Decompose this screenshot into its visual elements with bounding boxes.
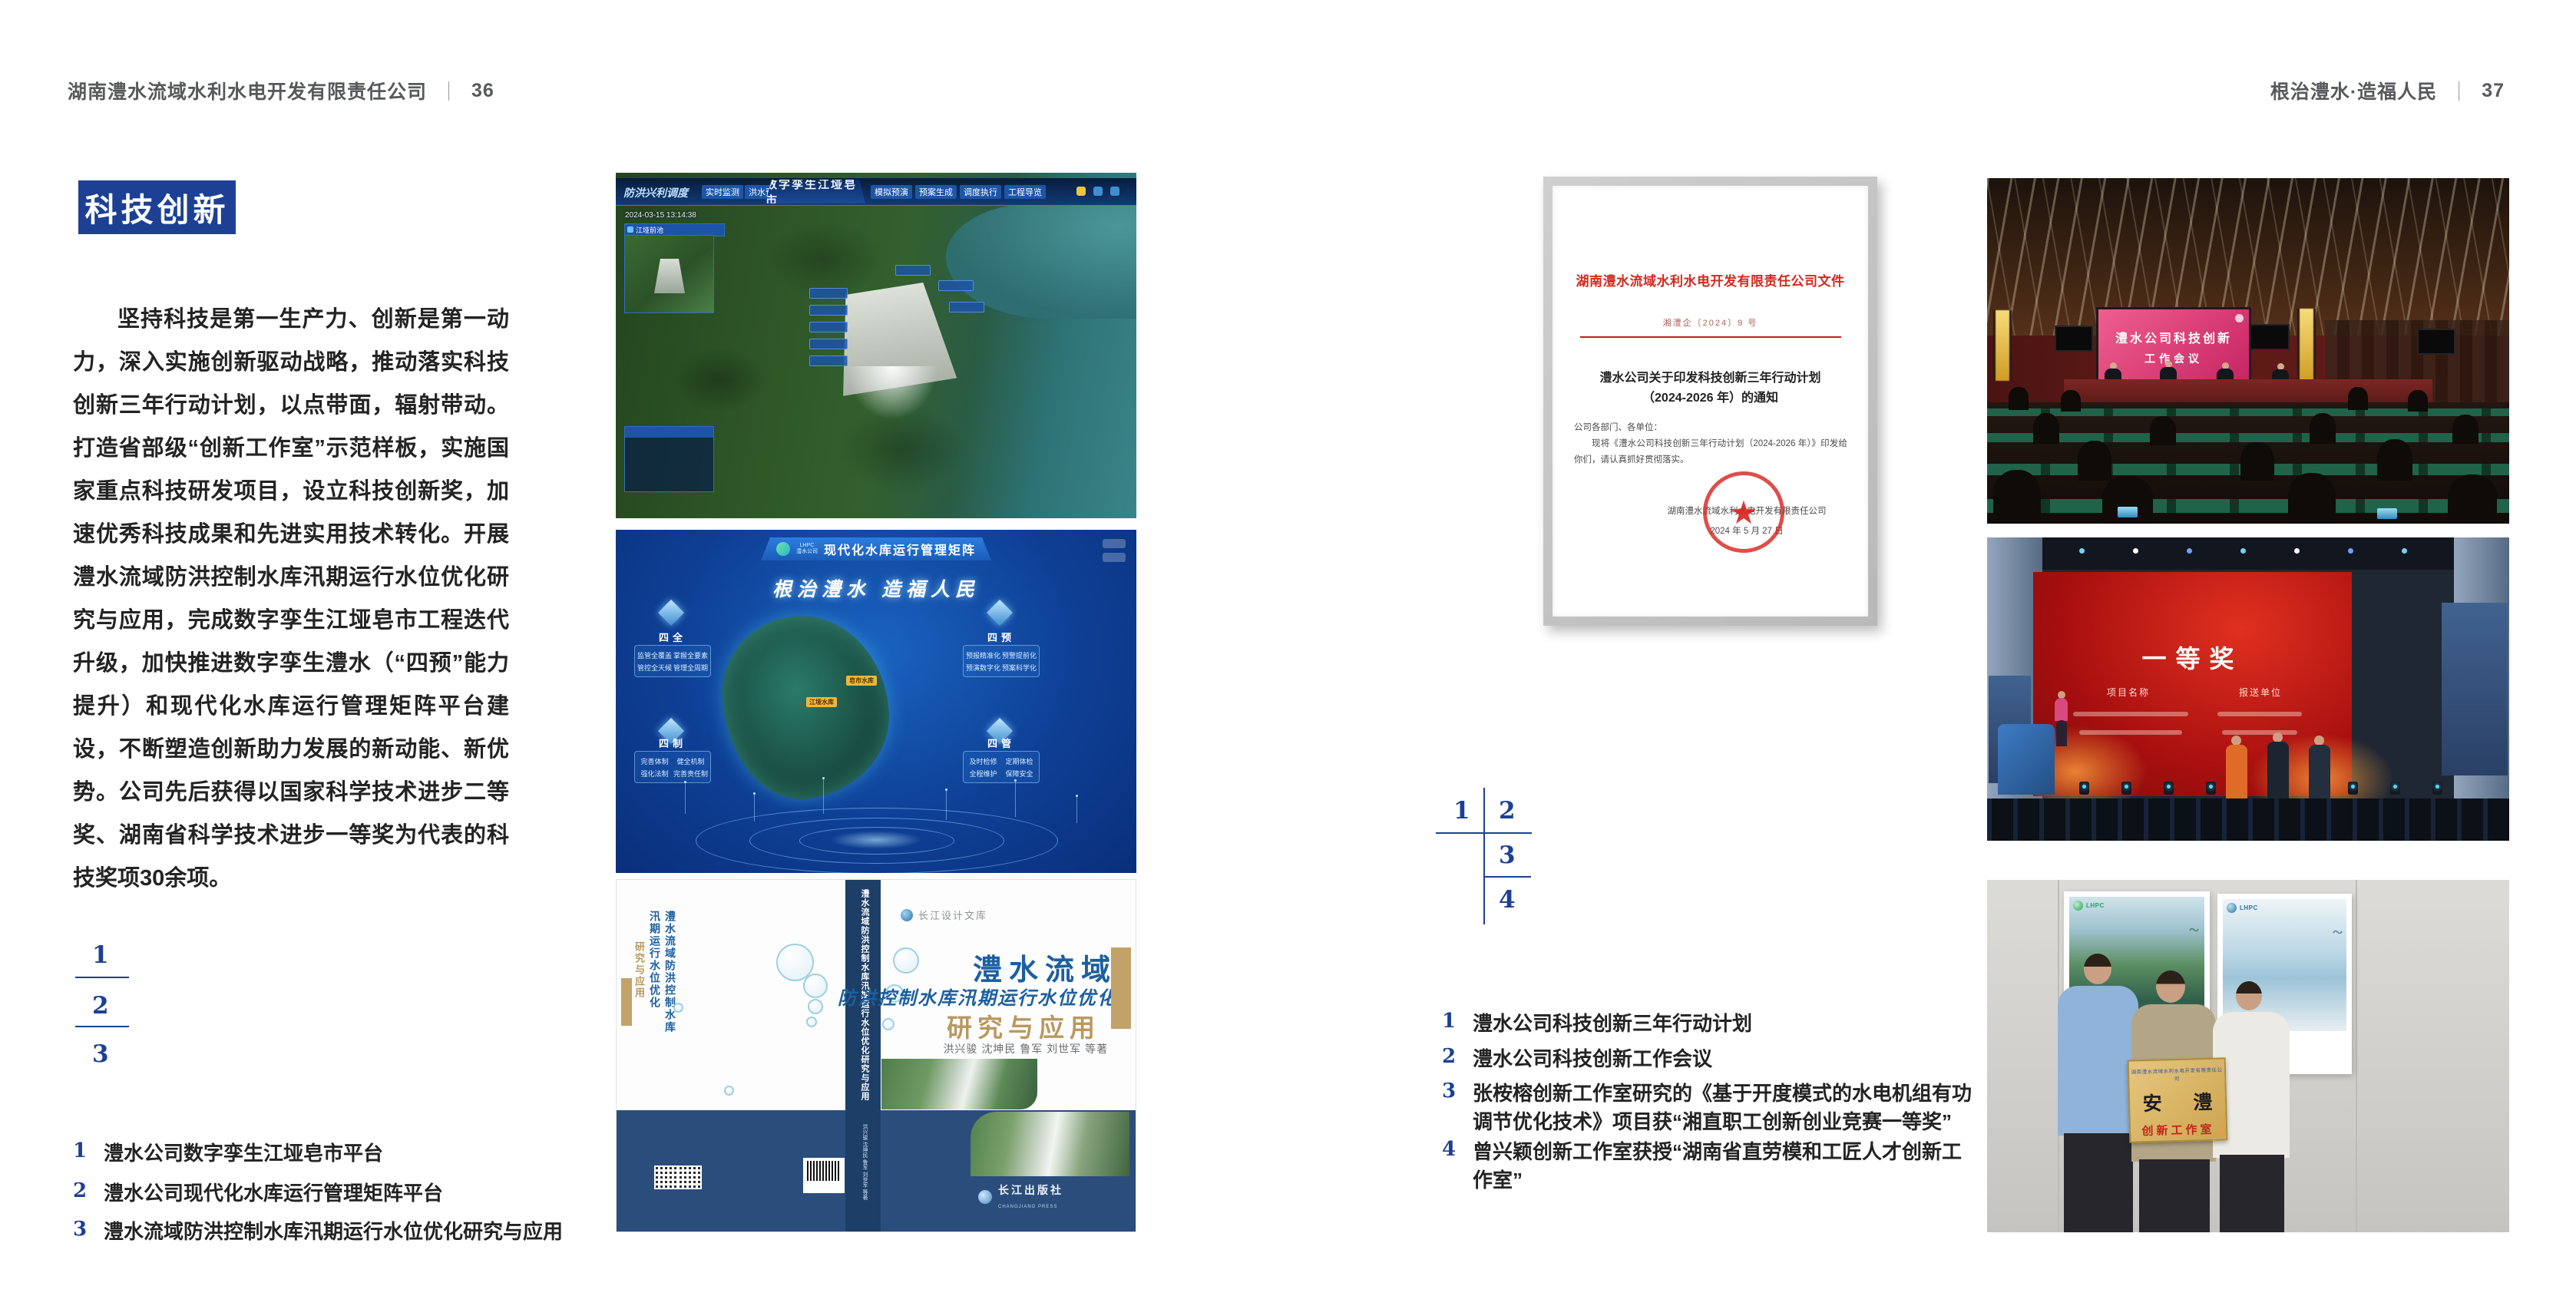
tab-dispatch-execute: 调度执行 xyxy=(960,185,1001,199)
toolbar-button xyxy=(1103,539,1126,548)
person-head xyxy=(2236,981,2262,1010)
book-spine: 澧水流域防洪控制水库汛期运行水位优化研究与应用 洪兴骏 沈坤民 鲁军 刘世军 等… xyxy=(845,880,881,1232)
side-screen-right xyxy=(2442,603,2508,775)
caption-text: 澧水公司现代化水库运行管理矩阵平台 xyxy=(104,1179,443,1208)
stage-truss xyxy=(2033,537,2463,570)
subject-line-1: 澧水公司关于印发科技创新三年行动计划 xyxy=(1553,369,1868,388)
caption-text: 澧水流域防洪控制水库汛期运行水位优化研究与应用 xyxy=(104,1218,563,1246)
right-index-4: 4 xyxy=(1499,886,1516,914)
publisher-logo-icon xyxy=(978,1190,992,1204)
matrix-slogan: 根治澧水 造福人民 xyxy=(616,574,1136,602)
document-red-rule xyxy=(1580,336,1841,338)
right-page-header: 根治澧水·造福人民 ｜ 37 xyxy=(2270,77,2505,104)
moving-head-light xyxy=(2432,782,2442,795)
water-droplet xyxy=(803,974,828,998)
locate-icon xyxy=(1110,187,1119,196)
mini-dam xyxy=(654,259,685,293)
stage-light xyxy=(2402,548,2407,554)
moving-head-light xyxy=(2348,782,2358,795)
person-trousers xyxy=(2139,1159,2210,1232)
light-pin xyxy=(823,779,824,814)
qr-code xyxy=(678,1165,702,1189)
subject-line-2: （2024-2026 年）的通知 xyxy=(1553,388,1868,408)
document-number: 湘澧企〔2024〕9 号 xyxy=(1553,316,1868,329)
panel-title-yu: 四预 xyxy=(963,630,1040,644)
data-label-chip xyxy=(949,302,984,312)
lower-panel-header xyxy=(625,427,713,438)
left-index-2: 2 xyxy=(92,992,109,1020)
attendee-silhouette xyxy=(2033,413,2059,444)
stage-light xyxy=(2079,548,2085,554)
wall-tv xyxy=(2055,326,2093,352)
left-index-1: 1 xyxy=(92,941,109,969)
panel-box-quan: 监管全覆盖 掌握全要素 管控全天候 管理全周期 xyxy=(634,645,711,677)
moving-head-light xyxy=(2121,782,2131,795)
stage-floor xyxy=(1987,798,2509,841)
stage-light xyxy=(2240,548,2246,554)
poster-calligraphy-strip: 〜 xyxy=(2189,922,2199,937)
basin-3d-map xyxy=(717,610,894,804)
back-cover-title: 澧水流域防洪控制水库汛期运行水位优化 xyxy=(647,911,678,1041)
panel-icon-quan xyxy=(658,600,684,626)
panel-item: 预警提前化 xyxy=(1001,650,1037,660)
panel-box-zhi: 完善体制 健全机制 强化法制 完善责任制 xyxy=(634,751,711,783)
publisher-name: 长江出版社 xyxy=(998,1184,1063,1196)
host-figure xyxy=(2055,698,2068,721)
attendee-silhouette xyxy=(2009,387,2029,410)
caption-text: 张桉榕创新工作室研究的《基于开度模式的水电机组有功调节优化技术》项目获“湘直职工… xyxy=(1473,1080,1976,1136)
data-label-chip xyxy=(809,339,848,349)
book-title-main: 澧水流域 xyxy=(973,946,1117,988)
poster-logo-text: LHPC xyxy=(2086,902,2105,909)
wall-tv xyxy=(2417,329,2455,355)
winner-suit xyxy=(2309,745,2330,800)
water-droplet xyxy=(724,1086,734,1096)
lhpc-logo-icon xyxy=(2073,901,2083,911)
toolbar-button xyxy=(1103,553,1126,562)
light-pin xyxy=(1076,797,1077,823)
intro-paragraph: 坚持科技是第一生产力、创新是第一动力，深入实施创新驱动战略，推动落实科技创新三年… xyxy=(73,298,509,900)
panel-item: 全程维护 xyxy=(965,769,1001,779)
figure-book-cover: 澧水流域防洪控制水库汛期运行水位优化 研究与应用 澧水流域防洪控制水库汛期运行水… xyxy=(616,879,1136,1232)
data-label-chip xyxy=(809,305,848,316)
attendee-silhouette xyxy=(2288,473,2336,524)
panel-item: 掌握全要素 xyxy=(673,650,709,660)
led-award-screen: 一等奖 项目名称 报送单位 xyxy=(2033,572,2352,796)
seal-star-icon: ★ xyxy=(1729,494,1758,531)
tab-project-tour: 工程导览 xyxy=(1004,185,1046,199)
person-head xyxy=(2084,954,2111,984)
panel-box-yu: 预报精准化 预警提前化 预演数字化 预案科学化 xyxy=(963,645,1040,677)
mini-panel-title: 江垭前池 xyxy=(636,225,663,235)
index-divider xyxy=(75,977,129,978)
award-entry-row xyxy=(2222,730,2297,735)
award-column-left: 项目名称 xyxy=(2107,686,2150,699)
right-caption-1: 1 澧水公司科技创新三年行动计划 xyxy=(1442,1010,1752,1038)
caption-number: 3 xyxy=(1442,1080,1459,1136)
spillway-water xyxy=(846,366,938,420)
caption-number: 1 xyxy=(73,1139,90,1168)
attendee-silhouette xyxy=(1993,470,2041,524)
panel-item: 保障安全 xyxy=(1001,769,1037,779)
lower-info-panel xyxy=(624,426,714,492)
desk-row xyxy=(1987,433,2509,442)
moving-head-light xyxy=(2164,782,2174,795)
left-page-header: 湖南澧水流域水利水电开发有限责任公司 ｜ 36 xyxy=(68,77,494,104)
panel-item: 强化法制 xyxy=(637,769,673,779)
book-title-sub: 防洪控制水库汛期运行水位优化 xyxy=(838,983,1117,1010)
ripple-glow xyxy=(830,831,922,849)
moving-head-light xyxy=(2206,782,2216,795)
dashboard-title: 数字孪生江垭皂市 xyxy=(766,180,865,203)
attendee-silhouette xyxy=(2061,390,2081,412)
caption-text: 澧水公司科技创新工作会议 xyxy=(1473,1045,1712,1073)
logo-en: LHPC xyxy=(800,543,815,548)
poster-logo-text: LHPC xyxy=(2240,904,2258,911)
index-vertical-line xyxy=(1483,788,1485,924)
series-logo: 长江设计文库 xyxy=(901,908,987,922)
layers-icon xyxy=(1093,187,1103,196)
header-divider: ｜ xyxy=(439,77,459,104)
index-divider xyxy=(1483,876,1531,878)
camera-icon xyxy=(627,226,633,233)
document-page: 湖南澧水流域水利水电开发有限责任公司文件 湘澧企〔2024〕9 号 澧水公司关于… xyxy=(1553,186,1868,617)
panel-item: 定期体检 xyxy=(1001,756,1037,766)
document-body: 现将《澧水公司科技创新三年行动计划（2024-2026 年）》印发给你们，请认真… xyxy=(1574,436,1847,468)
right-index-1: 1 xyxy=(1453,797,1470,825)
front-tan-bar xyxy=(1111,947,1131,1029)
figure-matrix-platform: LHPC 澧水公司 现代化水库运行管理矩阵 根治澧水 造福人民 皂市水库 江垭水… xyxy=(616,530,1136,873)
tab-realtime-monitor: 实时监测 xyxy=(702,185,743,199)
photo-studio-group: LHPC 〜 LHPC 〜 湖南澧水流域水利水电 xyxy=(1987,880,2509,1232)
attendee-silhouette xyxy=(2448,474,2497,524)
screen-title-line1: 澧水公司科技创新 xyxy=(2098,328,2249,346)
caption-number: 3 xyxy=(73,1218,90,1246)
book-title-tail: 研究与应用 xyxy=(947,1007,1100,1044)
panel-item: 预演数字化 xyxy=(965,663,1001,673)
data-label-chip xyxy=(938,280,974,291)
wall-tv xyxy=(2250,324,2290,350)
person-head xyxy=(2156,970,2185,1003)
qr-code xyxy=(654,1165,678,1189)
panel-item: 管控全天候 xyxy=(637,663,673,673)
desk-row xyxy=(1987,499,2509,513)
lhpc-logo-icon xyxy=(2227,903,2237,913)
map-label-jiangya: 江垭水库 xyxy=(806,697,837,707)
plaque-studio-title: 创新工作室 xyxy=(2131,1120,2227,1139)
moving-head-light xyxy=(2079,782,2089,795)
photo-innovation-meeting: 澧水公司科技创新 工作会议 xyxy=(1987,178,2509,524)
lhpc-logo-text: LHPC 澧水公司 xyxy=(796,543,818,555)
tissue-box xyxy=(2377,508,2397,519)
attendee-silhouette xyxy=(2408,390,2428,412)
plaque-studio-name: 安 澧 xyxy=(2130,1086,2226,1116)
panel-item: 及时检修 xyxy=(965,756,1001,766)
stage-light xyxy=(2133,548,2138,554)
left-caption-3: 3 澧水流域防洪控制水库汛期运行水位优化研究与应用 xyxy=(73,1218,563,1246)
water-droplet xyxy=(806,1017,817,1027)
page-number-right: 37 xyxy=(2482,80,2505,102)
attendee-silhouette xyxy=(2078,441,2111,481)
panel-item: 健全机制 xyxy=(673,756,709,766)
presenter-suit xyxy=(2267,742,2289,800)
water-droplet xyxy=(882,1018,894,1030)
award-entry-row xyxy=(2079,730,2182,735)
matrix-top-bar: LHPC 澧水公司 现代化水库运行管理矩阵 xyxy=(761,537,991,560)
light-pin xyxy=(685,783,686,814)
dashboard-timestamp: 2024-03-15 13:14:38 xyxy=(625,211,696,220)
caption-number: 2 xyxy=(73,1179,90,1208)
data-label-chip xyxy=(809,322,848,332)
panel-item: 管理全周期 xyxy=(673,663,709,673)
left-caption-2: 2 澧水公司现代化水库运行管理矩阵平台 xyxy=(73,1179,443,1208)
index-divider xyxy=(1436,832,1532,834)
studio-plaque: 湖南澧水流域水利水电开发有限责任公司 安 澧 创新工作室 xyxy=(2128,1057,2228,1142)
isbn-barcode xyxy=(803,1158,845,1193)
wall-lamp-column xyxy=(1993,310,2012,381)
publisher-name-en: CHANGJIANG PRESS xyxy=(998,1205,1057,1209)
caption-number: 2 xyxy=(1442,1045,1459,1073)
caption-text: 曾兴颖创新工作室获授“湖南省直劳模和工匠人才创新工作室” xyxy=(1473,1138,1976,1195)
person-trousers xyxy=(2064,1133,2133,1232)
index-divider xyxy=(75,1026,129,1027)
attendee-silhouette xyxy=(2348,387,2368,410)
lhpc-logo-icon xyxy=(776,542,790,556)
spine-authors: 洪兴骏 沈坤民 鲁军 刘世军 等著 xyxy=(861,1124,868,1216)
stage-light xyxy=(2187,548,2192,554)
right-caption-4: 4 曾兴颖创新工作室获授“湖南省直劳模和工匠人才创新工作室” xyxy=(1442,1138,1976,1195)
person-trousers xyxy=(2220,1155,2284,1232)
stage-light xyxy=(2294,548,2300,554)
winner-orange-jacket xyxy=(2226,745,2247,800)
document-red-title: 湖南澧水流域水利水电开发有限责任公司文件 xyxy=(1553,270,1868,289)
panel-item: 监管全覆盖 xyxy=(637,650,673,660)
dam-photo-small xyxy=(881,1059,1037,1109)
water-droplet xyxy=(808,999,823,1014)
moving-head-light xyxy=(2390,782,2400,795)
panel-title-zhi: 四制 xyxy=(634,736,711,750)
photo-award-ceremony: 一等奖 项目名称 报送单位 xyxy=(1987,537,2509,841)
figure-digital-twin-dam: 防洪兴利调度 实时监测 洪水预报 数字孪生江垭皂市 模拟预演 预案生成 调度执行… xyxy=(616,173,1136,518)
panel-item: 预案科学化 xyxy=(1001,663,1037,673)
panel-item: 完善体制 xyxy=(637,756,673,766)
header-divider: ｜ xyxy=(2449,77,2469,104)
caption-number: 1 xyxy=(1442,1010,1459,1038)
page-number-left: 36 xyxy=(471,80,494,102)
person-blue-polo xyxy=(2058,986,2138,1136)
dam-photo-large xyxy=(971,1112,1129,1176)
light-pin xyxy=(946,791,947,820)
data-label-chip xyxy=(895,265,931,276)
right-caption-2: 2 澧水公司科技创新工作会议 xyxy=(1442,1045,1712,1073)
plaque-company-line: 湖南澧水流域水利水电开发有限责任公司 xyxy=(2129,1065,2224,1083)
attendee-silhouette xyxy=(2377,439,2412,481)
tab-plan-generate: 预案生成 xyxy=(915,185,957,199)
series-name: 长江设计文库 xyxy=(918,908,987,922)
company-name: 湖南澧水流域水利水电开发有限责任公司 xyxy=(68,77,427,104)
award-entry-row xyxy=(2073,712,2188,716)
attendee-silhouette xyxy=(2310,413,2336,444)
right-index-3: 3 xyxy=(1499,841,1516,869)
logo-cn: 澧水公司 xyxy=(796,549,818,554)
right-caption-3: 3 张桉榕创新工作室研究的《基于开度模式的水电机组有功调节优化技术》项目获“湘直… xyxy=(1442,1080,1976,1136)
panel-box-guan: 及时检修 定期体检 全程维护 保障安全 xyxy=(963,751,1040,783)
screen-logo-icon xyxy=(2235,314,2244,322)
host-skirt xyxy=(2056,720,2067,746)
attendee-silhouette xyxy=(2150,416,2176,445)
poster-calligraphy-strip: 〜 xyxy=(2333,924,2343,939)
left-index-3: 3 xyxy=(92,1040,109,1068)
award-column-right: 报送单位 xyxy=(2239,686,2282,699)
mini-panel-photo xyxy=(624,235,714,313)
poster-logo: LHPC xyxy=(2227,903,2258,913)
document-subject: 澧水公司关于印发科技创新三年行动计划 （2024-2026 年）的通知 xyxy=(1553,369,1868,408)
light-pin xyxy=(1015,782,1016,817)
tab-simulation: 模拟预演 xyxy=(871,185,912,199)
figure-official-document: 湖南澧水流域水利水电开发有限责任公司文件 湘澧企〔2024〕9 号 澧水公司关于… xyxy=(1543,177,1877,626)
caption-text: 澧水公司科技创新三年行动计划 xyxy=(1473,1010,1752,1038)
back-cover-subtitle: 研究与应用 xyxy=(632,941,646,1033)
light-pin xyxy=(754,795,755,822)
attendee-silhouette xyxy=(2452,415,2478,444)
stage-light xyxy=(2348,548,2353,554)
attendee-silhouette xyxy=(2240,442,2274,481)
document-salutation: 公司各部门、各单位： xyxy=(1574,421,1662,433)
panel-item: 完善责任制 xyxy=(673,769,709,779)
panel-title-guan: 四管 xyxy=(963,736,1040,750)
water-droplet xyxy=(673,1003,683,1013)
caption-number: 4 xyxy=(1442,1138,1459,1195)
rostrum-desk xyxy=(2064,379,2432,402)
data-label-chip xyxy=(809,355,848,366)
host-podium xyxy=(1998,724,2055,795)
brochure-spread: 湖南澧水流域水利水电开发有限责任公司 ｜ 36 科技创新 坚持科技是第一生产力、… xyxy=(0,0,2576,1306)
official-seal: ★ xyxy=(1703,471,1784,553)
wall-lamp-column xyxy=(2297,309,2316,382)
poster-logo: LHPC xyxy=(2073,901,2105,911)
book-authors: 洪兴骏 沈坤民 鲁军 刘世军 等著 xyxy=(943,1041,1108,1056)
data-label-chip xyxy=(809,288,848,299)
award-title: 一等奖 xyxy=(2033,640,2352,675)
water-droplet xyxy=(893,947,919,974)
back-tan-bar xyxy=(621,978,632,1026)
right-index-2: 2 xyxy=(1499,797,1516,825)
tissue-box xyxy=(2118,507,2138,517)
panel-icon-yu xyxy=(987,600,1013,626)
user-icon xyxy=(1076,187,1086,196)
panel-item: 预报精准化 xyxy=(965,650,1001,660)
slogan-text: 根治澧水·造福人民 xyxy=(2270,77,2437,104)
caption-text: 澧水公司数字孪生江垭皂市平台 xyxy=(104,1139,383,1168)
dashboard-corner-label: 防洪兴利调度 xyxy=(623,185,688,200)
wall-seam xyxy=(2356,880,2357,1232)
panel-title-quan: 四全 xyxy=(634,630,711,644)
left-caption-1: 1 澧水公司数字孪生江垭皂市平台 xyxy=(73,1139,383,1168)
publisher-mark: 长江出版社 CHANGJIANG PRESS xyxy=(978,1182,1063,1212)
matrix-title: 现代化水库运行管理矩阵 xyxy=(824,540,976,558)
award-entry-row xyxy=(2217,712,2302,716)
map-label-zaoshi: 皂市水库 xyxy=(846,676,877,686)
globe-icon xyxy=(901,909,913,921)
section-badge: 科技创新 xyxy=(78,180,236,234)
